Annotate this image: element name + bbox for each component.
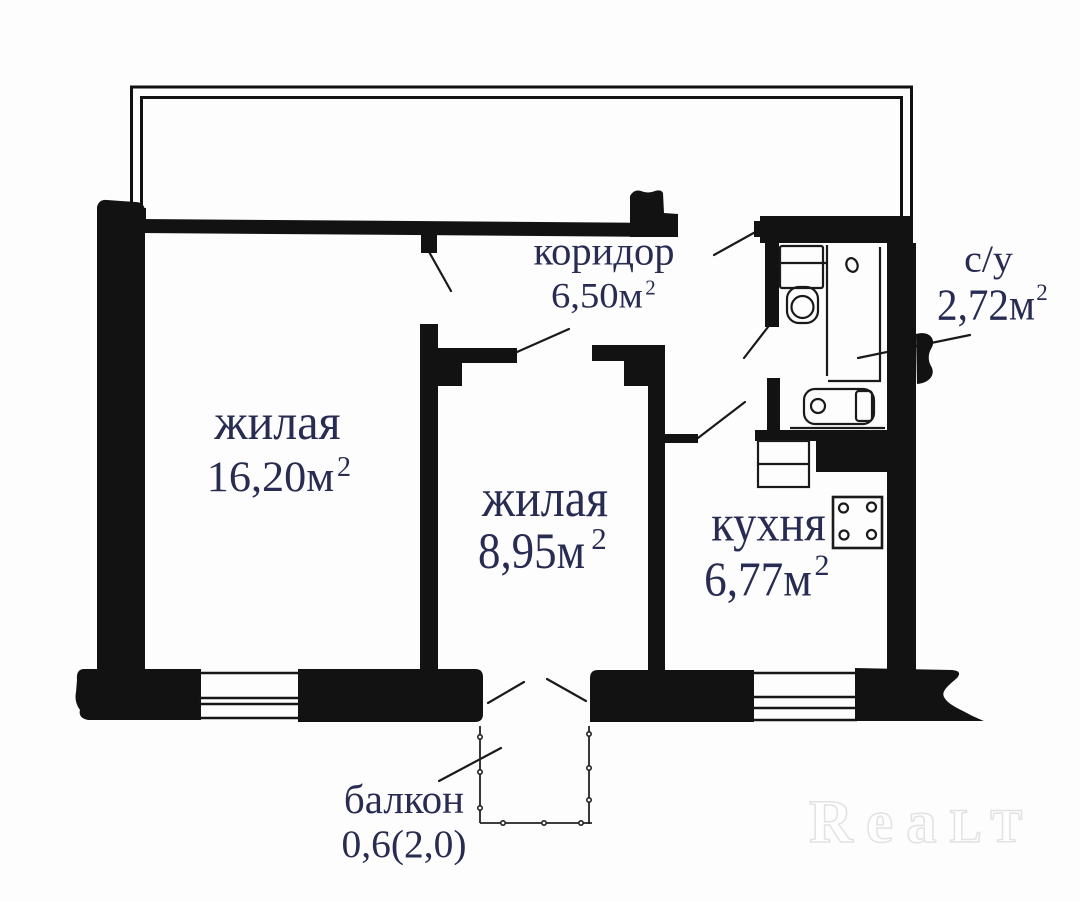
svg-text:2: 2: [645, 275, 656, 299]
svg-text:ReaLT: ReaLT: [809, 789, 1035, 856]
svg-text:2: 2: [337, 452, 351, 483]
svg-text:2: 2: [1036, 280, 1048, 305]
svg-text:с/у: с/у: [964, 238, 1013, 280]
svg-text:жилая: жилая: [213, 394, 340, 450]
svg-text:жилая: жилая: [481, 468, 608, 528]
svg-text:балкон: балкон: [344, 776, 464, 822]
svg-text:6,77м: 6,77м: [704, 553, 812, 607]
svg-text:2,72м: 2,72м: [937, 281, 1035, 330]
svg-text:0,6(2,0): 0,6(2,0): [341, 822, 466, 866]
svg-text:коридор: коридор: [534, 229, 675, 274]
svg-text:8,95м: 8,95м: [478, 525, 585, 580]
svg-text:2: 2: [591, 521, 607, 556]
svg-text:16,20м: 16,20м: [207, 454, 334, 501]
svg-text:кухня: кухня: [711, 494, 825, 552]
svg-text:2: 2: [815, 549, 830, 582]
svg-text:6,50м: 6,50м: [551, 277, 643, 316]
